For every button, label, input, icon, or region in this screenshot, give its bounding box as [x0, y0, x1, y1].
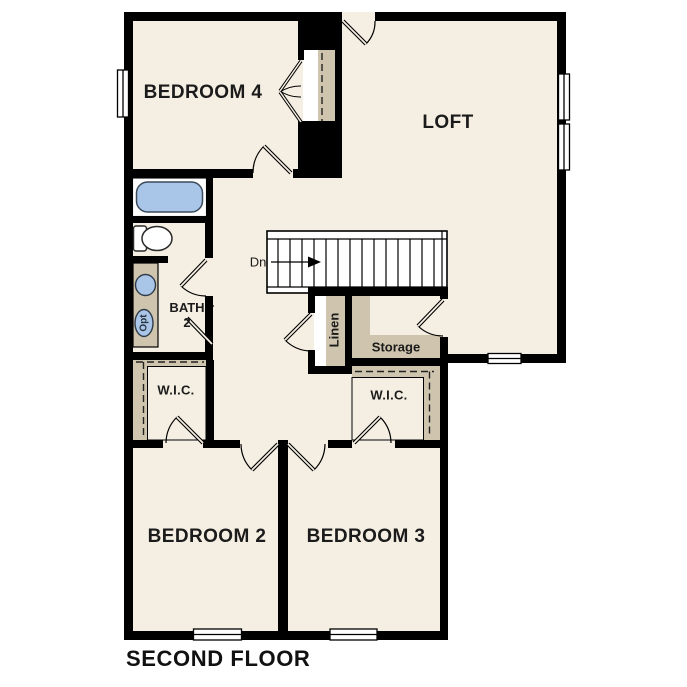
window-bedroom2 [194, 629, 242, 640]
window-loft-right-1 [559, 74, 570, 120]
room-label-bedroom2: BEDROOM 2 [148, 526, 267, 548]
room-label-bedroom4: BEDROOM 4 [144, 82, 263, 104]
bath-label-line1: BATH [169, 301, 204, 316]
stairs-dn-label: Dn [250, 255, 267, 270]
window-loft-right-2 [559, 124, 570, 170]
window-loft-bottom [488, 354, 521, 364]
window-bedroom4-left [118, 70, 129, 117]
toilet-icon [134, 226, 173, 251]
staircase [267, 231, 447, 293]
room-label-storage: Storage [372, 340, 420, 355]
floor-plan-drawing [0, 0, 687, 687]
bath-label-line2: 2 [169, 316, 204, 331]
floor-plan: BEDROOM 4 LOFT BATH 2 W.I.C. W.I.C. Line… [0, 0, 687, 687]
sink-icon [136, 275, 156, 296]
room-label-bedroom3: BEDROOM 3 [307, 526, 426, 548]
bathtub-icon [137, 182, 203, 212]
room-label-loft: LOFT [422, 112, 473, 134]
room-label-linen: Linen [327, 313, 342, 348]
room-label-wic-left: W.I.C. [157, 383, 194, 398]
room-label-bath2: BATH 2 [169, 301, 204, 331]
optional-sink-label: Opt [139, 314, 150, 331]
floor-title: SECOND FLOOR [126, 646, 310, 672]
window-bedroom3 [330, 629, 377, 640]
room-label-wic-right: W.I.C. [370, 388, 407, 403]
